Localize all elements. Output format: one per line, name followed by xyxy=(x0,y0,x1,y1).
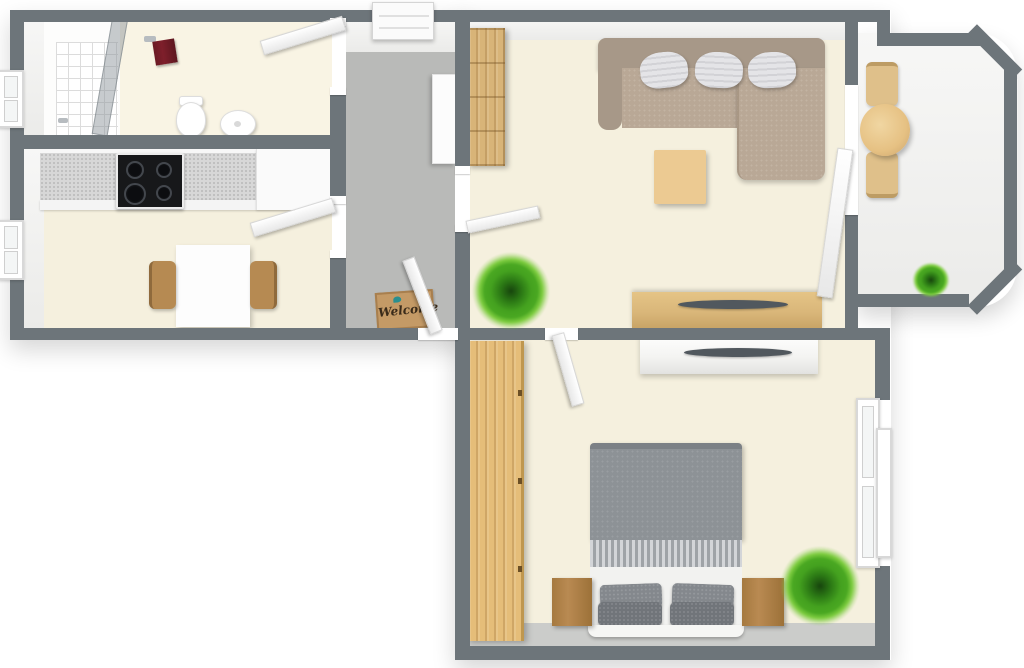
shower-faucet xyxy=(58,118,68,123)
kitchen-door-jamb xyxy=(330,250,346,258)
wall-living-bedroom-left xyxy=(458,328,545,340)
sofa-pillow xyxy=(694,51,744,89)
wall-bedroom-left xyxy=(455,340,470,660)
wall-hall-living-lower xyxy=(455,228,470,340)
wall-balcony-top xyxy=(877,33,982,46)
dining-chair-left xyxy=(149,261,176,309)
balcony-chair-top xyxy=(866,62,898,106)
window-pane xyxy=(4,226,18,249)
bed-pillow-right-lower xyxy=(670,602,734,626)
burner-icon xyxy=(156,185,172,201)
hall-closet xyxy=(432,74,456,164)
sink-drain xyxy=(234,121,241,127)
dining-table xyxy=(176,245,250,327)
cooktop xyxy=(116,153,184,209)
living-door-jamb xyxy=(455,166,470,174)
living-tv xyxy=(678,300,788,309)
towel-red xyxy=(152,38,177,65)
burner-icon xyxy=(124,183,146,205)
sofa-left-armrest xyxy=(598,38,622,130)
wall-bathroom-kitchen xyxy=(10,135,346,149)
wardrobe-handle xyxy=(518,566,522,572)
wall-living-balcony-lower xyxy=(845,215,858,328)
kitchen-window xyxy=(0,220,24,280)
hallway-floor xyxy=(346,18,455,328)
balcony-round-table xyxy=(860,104,910,156)
nightstand-left xyxy=(552,578,592,626)
window-pane xyxy=(862,406,874,478)
nightstand-right xyxy=(742,578,784,626)
shoe-cabinet-line xyxy=(379,15,429,17)
wall-hall-left-mid xyxy=(330,94,346,202)
bedroom-wardrobe xyxy=(467,341,524,641)
bathroom-window xyxy=(0,70,24,128)
wardrobe-handle xyxy=(518,478,522,484)
balcony-plant xyxy=(912,262,950,298)
window-pane xyxy=(862,486,874,558)
bedroom-window-open-panel xyxy=(876,428,892,558)
wall-bedroom-bottom xyxy=(455,646,890,660)
living-room-plant xyxy=(472,252,550,330)
balcony-chair-bottom xyxy=(866,152,898,198)
burner-icon xyxy=(156,162,172,178)
sofa-pillow xyxy=(747,51,797,89)
window-pane xyxy=(4,100,18,122)
wall-balcony-right xyxy=(1004,66,1017,272)
wall-bedroom-right-lower xyxy=(875,566,890,660)
hall-shoe-cabinet xyxy=(372,2,434,40)
wardrobe-handle xyxy=(518,390,522,396)
toilet-bowl xyxy=(176,102,206,137)
window-pane xyxy=(4,251,18,274)
wall-top xyxy=(10,10,890,22)
bed-pillow-left-lower xyxy=(598,602,662,626)
floor-plan: Welcome xyxy=(0,0,1024,668)
wall-hall-left-low xyxy=(330,252,346,340)
living-sideboard xyxy=(632,292,822,330)
living-shelf-lines xyxy=(467,28,505,166)
wall-bottom-left-wing xyxy=(10,328,418,340)
bedroom-plant xyxy=(780,546,860,626)
dining-chair-right xyxy=(250,261,277,309)
wall-living-bedroom-right xyxy=(578,328,890,340)
wall-balcony-bottom xyxy=(857,294,969,307)
wall-living-balcony-upper xyxy=(845,18,858,85)
bird-icon xyxy=(393,296,401,303)
shoe-cabinet-line xyxy=(379,27,429,29)
window-pane xyxy=(4,76,18,98)
coffee-table xyxy=(654,150,706,204)
burner-icon xyxy=(126,161,144,179)
bed-duvet xyxy=(590,443,742,540)
bed-folded-band xyxy=(590,540,742,567)
wall-bedroom-right-upper xyxy=(875,340,890,400)
bed-frame-foot xyxy=(588,625,744,637)
bathroom-left-wall-face xyxy=(24,18,44,137)
wall-left xyxy=(10,10,24,340)
bedroom-tv xyxy=(684,348,792,357)
bathroom-door-jamb xyxy=(330,87,346,95)
wall-hall-living-upper xyxy=(455,10,470,172)
